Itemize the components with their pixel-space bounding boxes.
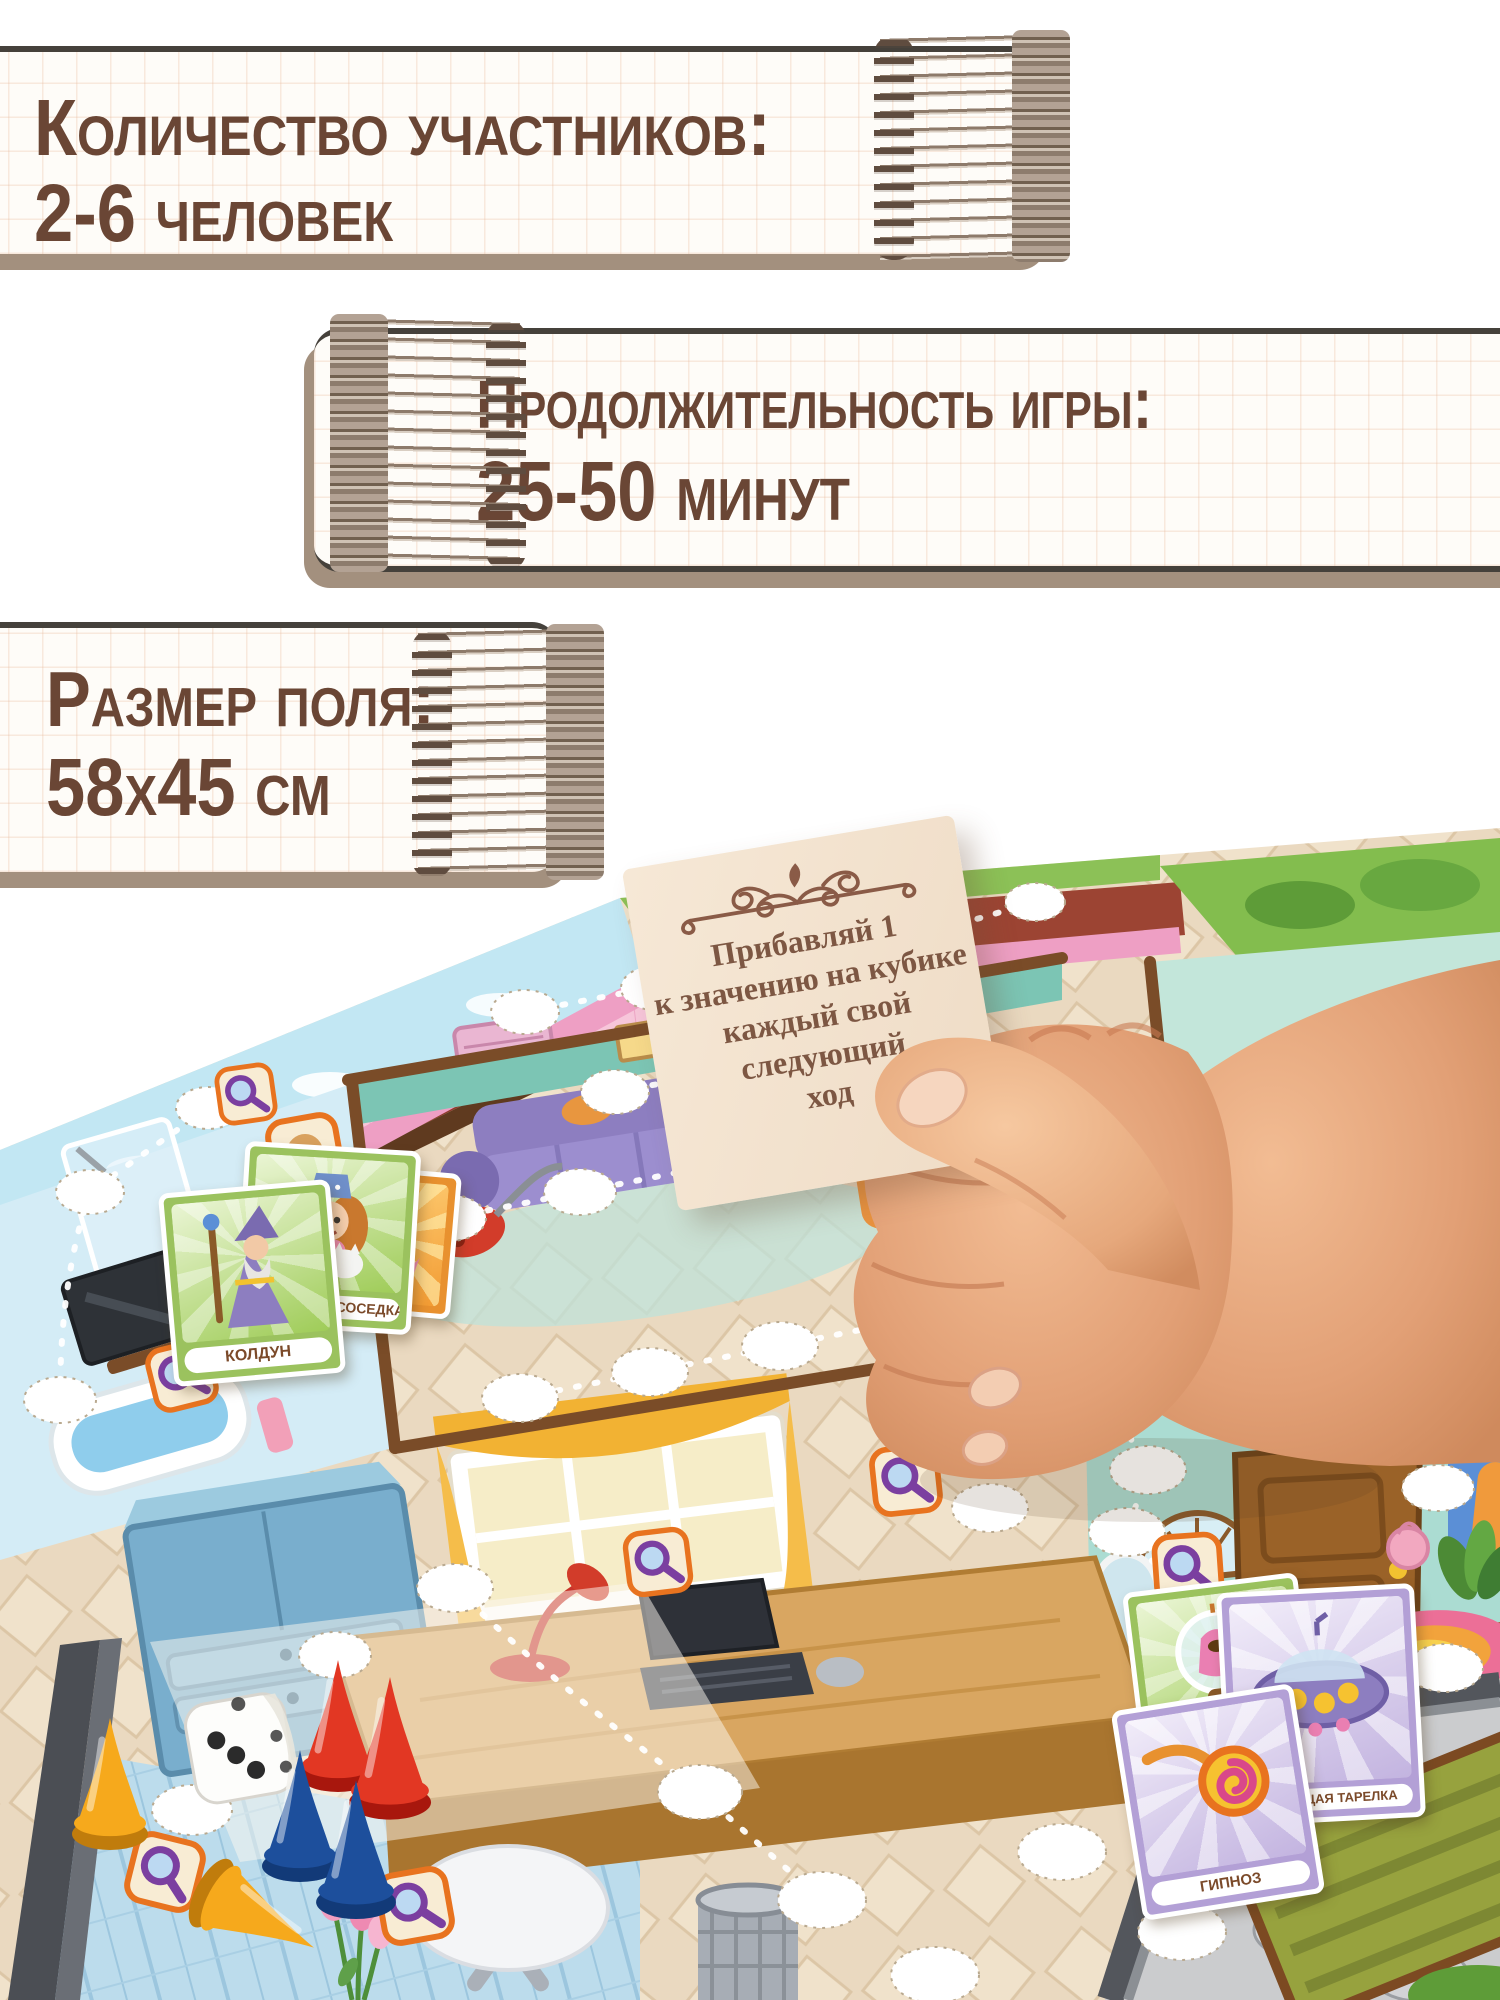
participants-value: 2-6 человек [34, 174, 754, 254]
thumb [780, 960, 1200, 1290]
wizard-art [171, 1192, 331, 1343]
spiral-binding-icon [330, 318, 520, 570]
hypnosis-art [1124, 1697, 1307, 1878]
magnifier-icon [215, 1063, 276, 1124]
spiral-binding-icon [880, 34, 1070, 260]
field-size-title: Размер поля: [46, 664, 435, 734]
duration-value: 25-50 минут [476, 450, 1186, 532]
duration-title: Продолжительность игры: [476, 368, 1152, 438]
spiral-binding-icon [418, 628, 604, 878]
event-card-hypnosis: ГИПНОЗ [1111, 1683, 1326, 1921]
die [182, 1689, 302, 1806]
event-card-wizard: КОЛДУН [158, 1179, 346, 1387]
participants-title: Количество участников: [34, 92, 771, 164]
computer-mouse [816, 1657, 864, 1687]
field-size-value: 58х45 см [46, 748, 435, 828]
card-label: КОЛДУН [184, 1336, 334, 1374]
